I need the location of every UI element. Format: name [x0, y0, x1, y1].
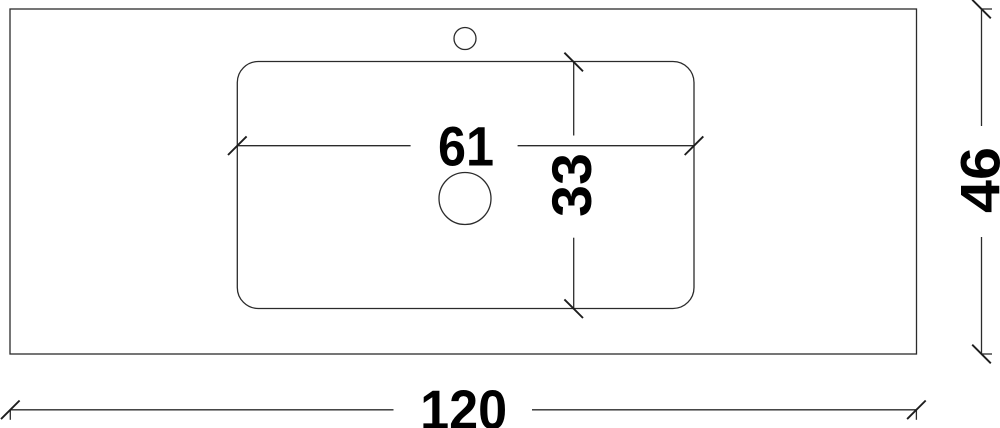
svg-text:46: 46	[949, 147, 1000, 213]
svg-text:33: 33	[540, 153, 603, 217]
svg-text:61: 61	[438, 115, 494, 178]
svg-text:120: 120	[420, 378, 507, 428]
